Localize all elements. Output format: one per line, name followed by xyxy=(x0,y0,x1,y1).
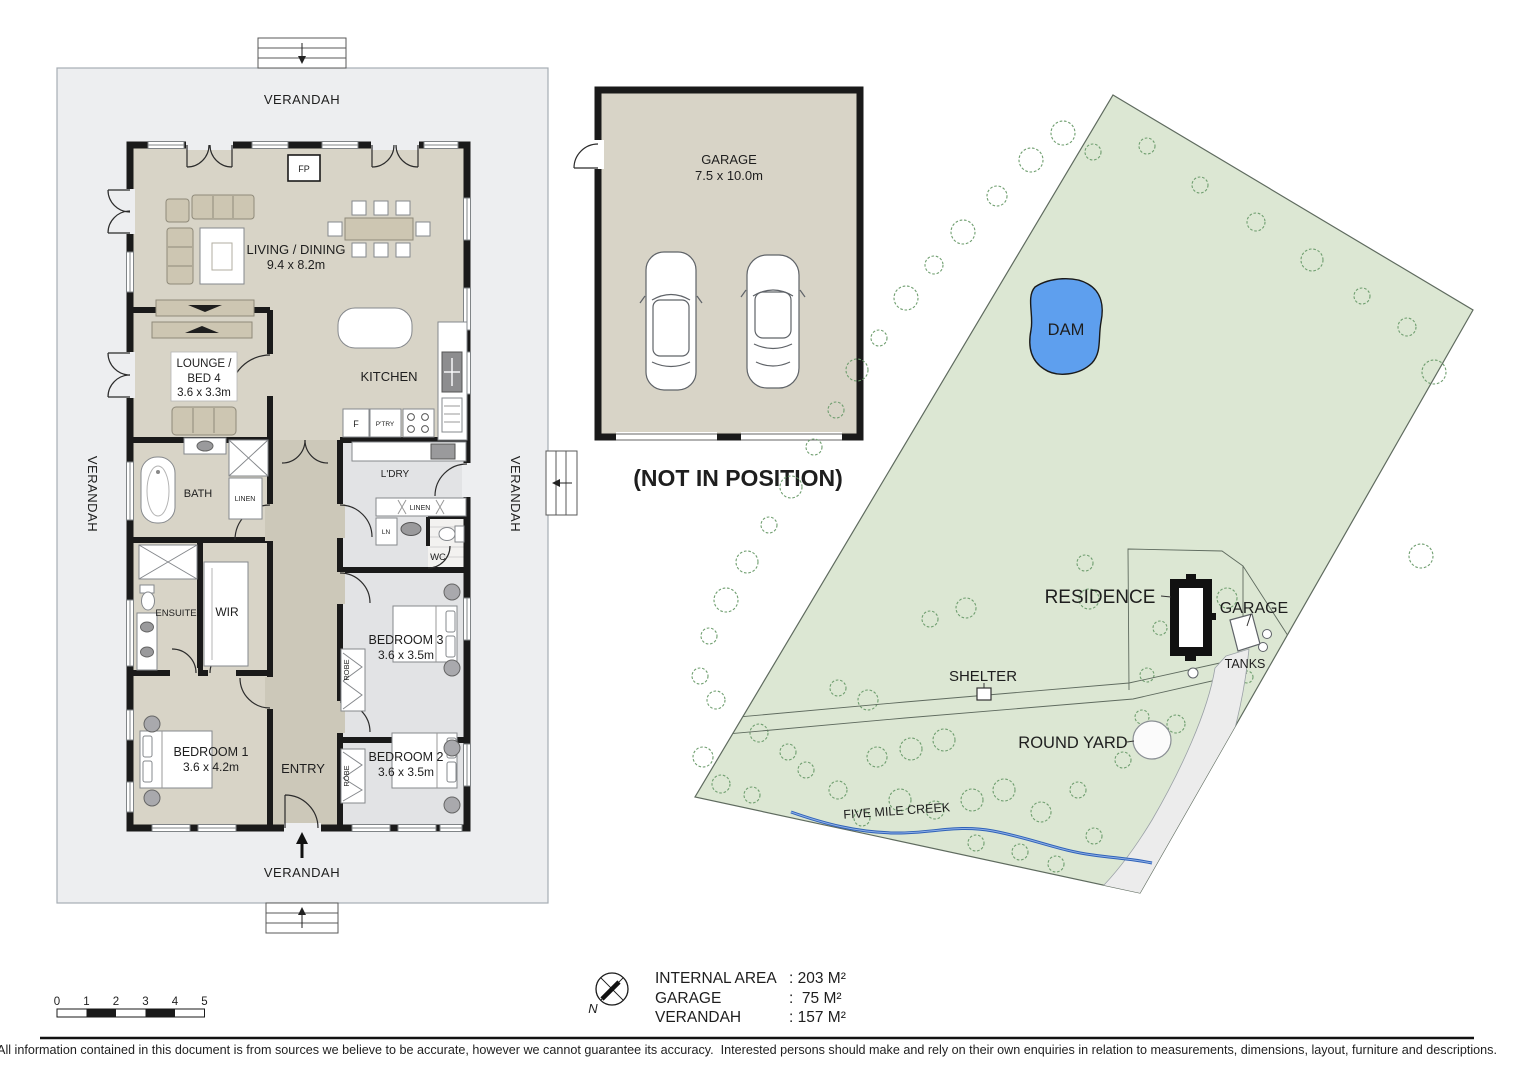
verandah-label-left: VERANDAH xyxy=(85,456,100,532)
car-icon xyxy=(640,252,702,390)
not-in-position-note: (NOT IN POSITION) xyxy=(633,465,843,491)
disclaimer-text: All information contained in this docume… xyxy=(0,1043,1497,1057)
fp-label: FP xyxy=(298,164,310,174)
footer: All information contained in this docume… xyxy=(0,1038,1497,1057)
car-icon xyxy=(741,255,805,388)
bedroom1-label: BEDROOM 1 xyxy=(173,745,248,759)
ensuite-label: ENSUITE xyxy=(155,608,196,619)
compass-icon: N xyxy=(588,973,628,1016)
steps-bottom xyxy=(266,903,338,933)
area-value: : 203 M² xyxy=(789,970,846,987)
residence-label: RESIDENCE xyxy=(1045,587,1156,608)
entry-label: ENTRY xyxy=(281,761,325,776)
area-value: : 75 M² xyxy=(789,990,842,1007)
garage-floor-plan: GARAGE 7.5 x 10.0m (NOT IN POSITION) xyxy=(574,90,860,491)
bedroom3-label: BEDROOM 3 xyxy=(368,633,443,647)
tanks-label: TANKS xyxy=(1225,657,1266,671)
scale-tick: 3 xyxy=(142,996,148,1008)
garage-plan-dims: 7.5 x 10.0m xyxy=(695,168,763,183)
area-label: GARAGE xyxy=(655,990,721,1007)
verandah-label-top: VERANDAH xyxy=(264,92,340,107)
bath-label: BATH xyxy=(184,488,213,500)
dam-label: DAM xyxy=(1048,321,1085,339)
ln-label: LN xyxy=(382,529,391,536)
bedroom1-dims: 3.6 x 4.2m xyxy=(183,760,239,774)
wir-label: WIR xyxy=(215,605,239,619)
scale-tick: 5 xyxy=(201,996,207,1008)
shelter-label: SHELTER xyxy=(949,668,1017,685)
garage-plan-label: GARAGE xyxy=(701,152,757,167)
area-value: : 157 M² xyxy=(789,1009,846,1026)
bedroom3-dims: 3.6 x 3.5m xyxy=(378,648,434,662)
robe2-label: ROBE xyxy=(342,765,351,786)
robe3-label: ROBE xyxy=(342,659,351,680)
living-dining-label: LIVING / DINING xyxy=(247,242,346,257)
living-dining-dims: 9.4 x 8.2m xyxy=(267,258,325,272)
bedroom2-dims: 3.6 x 3.5m xyxy=(378,765,434,779)
lounge-furniture xyxy=(172,407,236,435)
verandah-label-bottom: VERANDAH xyxy=(264,865,340,880)
linen-label-1: LINEN xyxy=(235,496,256,503)
fireplace: FP xyxy=(288,155,320,181)
wc-label: WC xyxy=(430,552,446,563)
lounge-label-2: BED 4 xyxy=(187,373,221,385)
lounge-dims: 3.6 x 3.3m xyxy=(177,387,231,399)
round-yard-label: ROUND YARD xyxy=(1018,734,1127,752)
site-garage-label: GARAGE xyxy=(1220,600,1288,617)
steps-top xyxy=(258,38,346,68)
scale-tick: 1 xyxy=(83,996,89,1008)
scale-tick: 4 xyxy=(172,996,179,1008)
north-label: N xyxy=(588,1001,598,1016)
area-summary: INTERNAL AREA : 203 M² GARAGE : 75 M² VE… xyxy=(655,970,846,1026)
linen-label-2: LINEN xyxy=(410,505,431,512)
bedroom2-label: BEDROOM 2 xyxy=(368,750,443,764)
steps-right xyxy=(546,451,577,515)
kitchen-label: KITCHEN xyxy=(360,369,417,384)
area-label: VERANDAH xyxy=(655,1009,741,1026)
ldry-label: L'DRY xyxy=(381,469,410,480)
scale-tick: 0 xyxy=(54,996,60,1008)
house-floor-plan: FP xyxy=(57,38,577,933)
lounge-label-1: LOUNGE / xyxy=(177,358,233,370)
scale-bar: 0 1 2 3 4 5 xyxy=(54,996,208,1017)
area-label: INTERNAL AREA xyxy=(655,970,777,987)
floorplan-document: FP xyxy=(0,0,1513,1080)
scale-tick: 2 xyxy=(113,996,119,1008)
pantry-label: P'TRY xyxy=(376,421,395,428)
verandah-label-right: VERANDAH xyxy=(508,456,523,532)
fridge-label: F xyxy=(353,419,359,429)
